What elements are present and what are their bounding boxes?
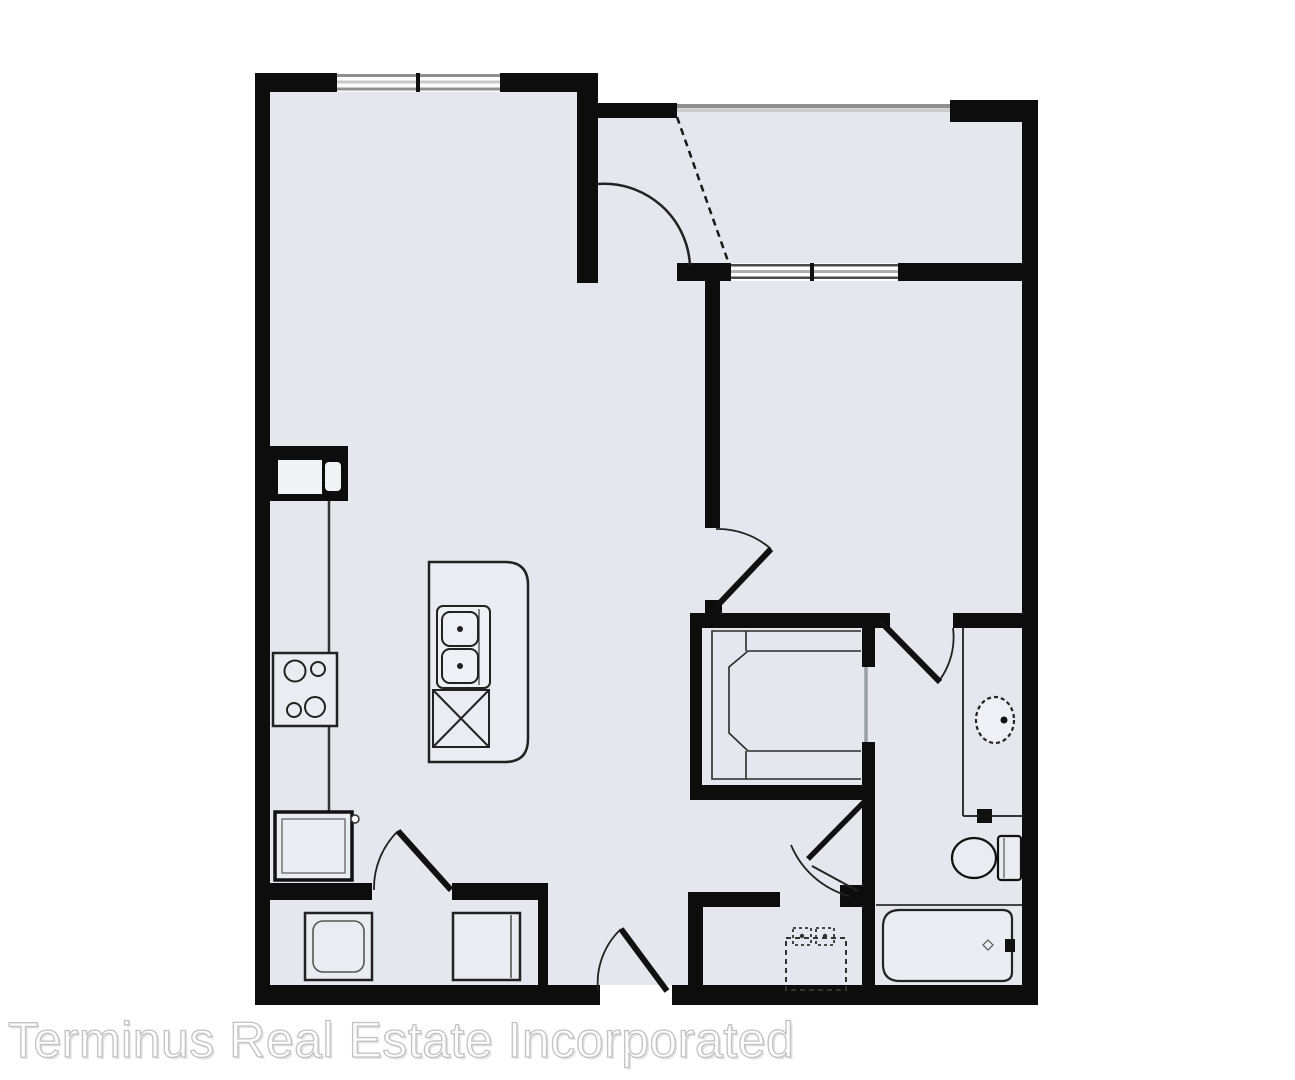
dryer-body — [453, 913, 520, 980]
toilet-icon — [952, 836, 1021, 880]
washer-icon — [305, 913, 372, 980]
wall-bottom-a — [255, 985, 600, 1005]
vanity-faucet-block — [977, 809, 992, 823]
wall-closet-right-stub — [862, 613, 875, 667]
living-window-mullion — [416, 73, 420, 92]
wall-laundry-top-b — [452, 883, 548, 900]
utility-valve-right-dot — [823, 934, 827, 938]
patio-screen — [677, 104, 950, 112]
range-body — [273, 653, 337, 726]
wall-closet-bottom — [690, 785, 875, 800]
patio-screen-line-dark — [677, 104, 950, 108]
pantry-cabinet-icon — [275, 812, 359, 880]
wall-living-bedroom-divider — [705, 281, 720, 528]
toilet-tank — [998, 836, 1021, 880]
floor-plan-drawing: Terminus Real Estate Incorporated Termin… — [0, 0, 1295, 1080]
bedroom-window-mullion — [810, 263, 814, 281]
bedroom-window-frame-bottom — [731, 277, 898, 280]
wall-left — [255, 73, 270, 1005]
vanity-sink-bowl — [976, 697, 1014, 743]
living-room-window — [337, 73, 500, 92]
wall-nook-block — [840, 885, 875, 907]
watermark: Terminus Real Estate Incorporated Termin… — [8, 1012, 796, 1070]
watermark-text: Terminus Real Estate Incorporated — [8, 1012, 794, 1068]
wall-bottom-b — [672, 985, 1038, 1005]
washer-body — [305, 913, 372, 980]
wall-bath-hall — [862, 742, 875, 985]
wall-bedroom-window-left — [677, 263, 731, 281]
vanity-sink-drain — [1001, 717, 1008, 724]
bedroom-window-frame-top — [731, 264, 898, 267]
pantry-body — [275, 812, 352, 880]
pantry-knob — [351, 815, 359, 823]
wall-bath-top — [953, 613, 1022, 628]
wall-closet-top — [690, 613, 890, 628]
range-cooktop-icon — [273, 653, 337, 726]
floor-plan-page: Terminus Real Estate Incorporated Termin… — [0, 0, 1295, 1080]
patio-screen-line-light — [677, 109, 950, 113]
wall-laundry-top-a — [255, 883, 372, 900]
kitchen-island-icon — [429, 562, 528, 762]
bedroom-window-mid-rail — [731, 270, 898, 273]
toilet-bowl — [952, 838, 996, 878]
wall-closet-left — [690, 613, 702, 800]
wall-foyer-step-horizontal — [595, 103, 677, 118]
refrigerator-door-right — [325, 462, 341, 491]
bathtub-icon — [876, 905, 1022, 981]
utility-valve-left-dot — [800, 934, 804, 938]
sink-drain-top — [457, 626, 463, 632]
wall-bedroom-window-right — [898, 263, 1022, 281]
dryer-icon — [453, 913, 520, 980]
refrigerator-icon — [262, 446, 348, 501]
wall-top-right-corner — [950, 100, 1038, 122]
refrigerator-door-left — [278, 460, 322, 494]
wall-right — [1022, 102, 1038, 1005]
vanity-sink-icon — [976, 697, 1014, 743]
sink-drain-bottom — [457, 663, 463, 669]
wall-laundry-right — [538, 900, 548, 985]
wall-foyer-step-vertical — [577, 73, 598, 283]
wall-hall-vertical — [688, 892, 703, 1005]
tub-faucet — [1005, 939, 1015, 952]
bedroom-window — [731, 263, 898, 281]
floor-area — [262, 80, 1030, 1000]
